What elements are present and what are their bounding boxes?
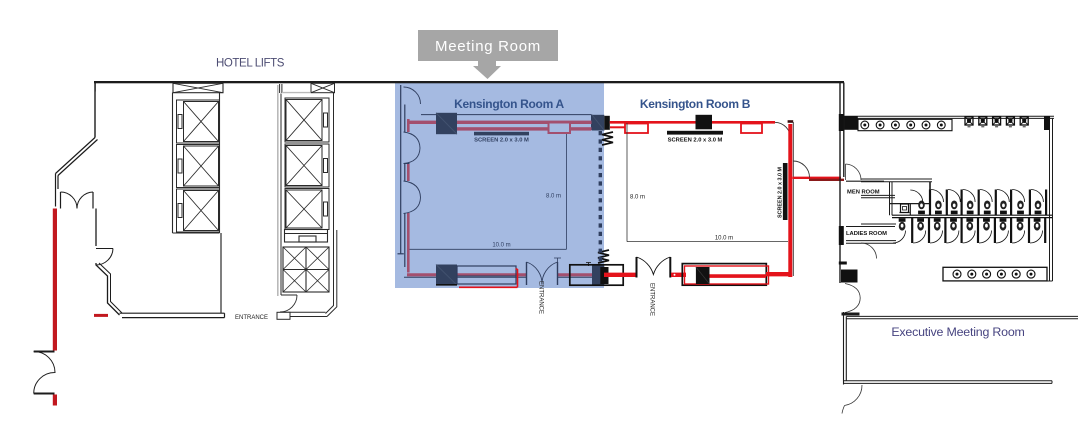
svg-text:Kensington Room B: Kensington Room B xyxy=(640,97,751,111)
svg-text:10.0 m: 10.0 m xyxy=(492,243,510,249)
svg-text:Executive Meeting Room: Executive Meeting Room xyxy=(891,325,1024,339)
svg-text:ENTRANCE: ENTRANCE xyxy=(649,283,655,316)
svg-text:8.0 m: 8.0 m xyxy=(630,195,645,201)
svg-text:ENTRANCE: ENTRANCE xyxy=(538,281,544,314)
svg-text:10.0 m: 10.0 m xyxy=(715,236,733,242)
svg-text:SCREEN 2.0 x 3.0 M: SCREEN 2.0 x 3.0 M xyxy=(474,138,529,144)
svg-text:LADIES ROOM: LADIES ROOM xyxy=(846,231,887,237)
svg-text:SCREEN 2.0 x 3.0 M: SCREEN 2.0 x 3.0 M xyxy=(777,167,783,218)
svg-text:8.0 m: 8.0 m xyxy=(546,194,561,200)
svg-text:HOTEL LIFTS: HOTEL LIFTS xyxy=(216,58,285,70)
svg-text:Meeting Room: Meeting Room xyxy=(435,38,541,55)
svg-text:MEN ROOM: MEN ROOM xyxy=(847,190,880,196)
svg-text:Kensington Room A: Kensington Room A xyxy=(454,97,564,111)
svg-text:ENTRANCE: ENTRANCE xyxy=(235,315,268,321)
svg-text:SCREEN 2.0 x 3.0 M: SCREEN 2.0 x 3.0 M xyxy=(668,138,723,144)
